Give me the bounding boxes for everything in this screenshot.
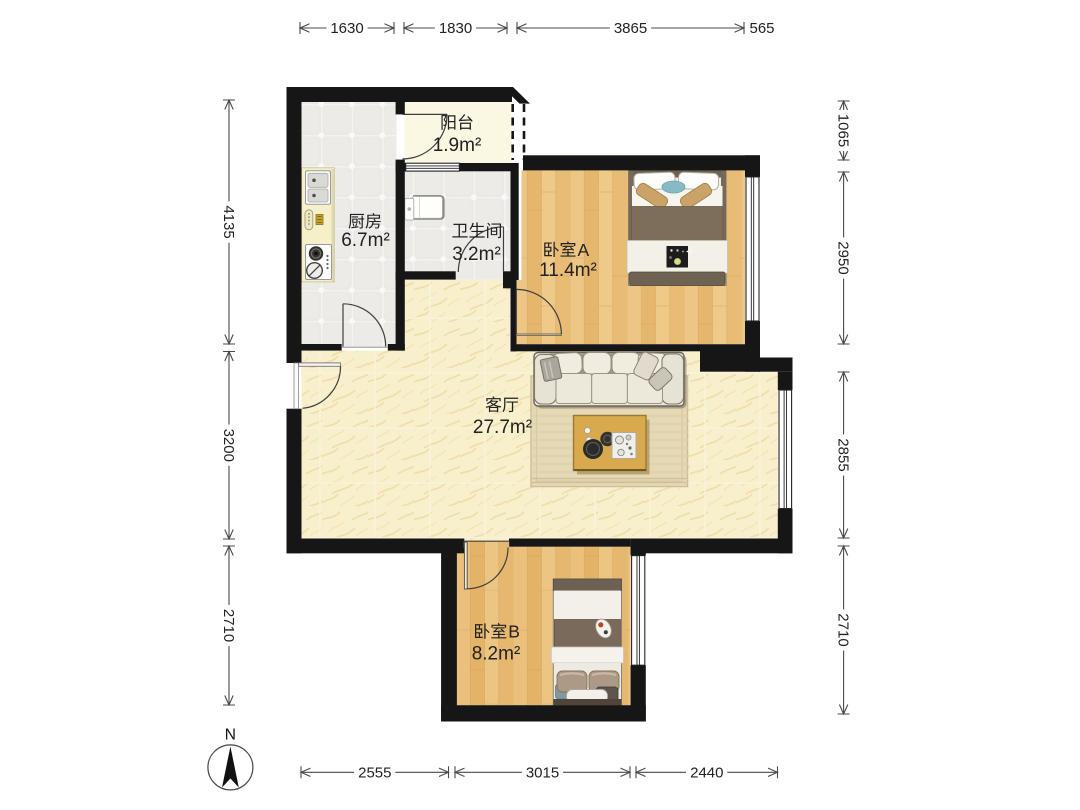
svg-text:27.7m²: 27.7m²: [473, 417, 532, 438]
svg-text:1.9m²: 1.9m²: [433, 135, 482, 156]
svg-text:2710: 2710: [220, 609, 237, 642]
svg-text:2555: 2555: [358, 764, 391, 781]
svg-text:1630: 1630: [330, 20, 363, 37]
svg-text:8.2m²: 8.2m²: [472, 644, 521, 665]
svg-text:1065: 1065: [835, 114, 852, 147]
svg-text:4135: 4135: [220, 205, 237, 238]
svg-text:565: 565: [749, 20, 774, 37]
svg-text:3200: 3200: [220, 429, 237, 462]
svg-text:2710: 2710: [835, 613, 852, 646]
svg-text:11.4m²: 11.4m²: [539, 260, 597, 281]
svg-text:B: B: [508, 622, 520, 642]
svg-text:2950: 2950: [835, 241, 852, 274]
svg-text:3865: 3865: [614, 20, 647, 37]
svg-text:2440: 2440: [690, 764, 723, 781]
svg-text:2855: 2855: [835, 438, 852, 471]
svg-text:3015: 3015: [526, 764, 559, 781]
svg-text:1830: 1830: [439, 20, 472, 37]
svg-text:A: A: [578, 240, 590, 260]
svg-text:6.7m²: 6.7m²: [341, 230, 390, 251]
svg-text:3.2m²: 3.2m²: [452, 244, 501, 265]
svg-text:N: N: [225, 727, 236, 744]
